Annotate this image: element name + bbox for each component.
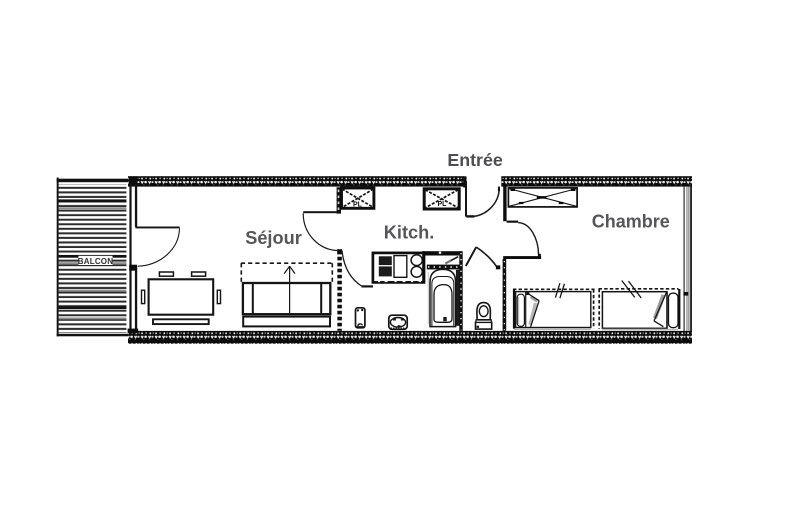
svg-text:Chambre: Chambre bbox=[592, 212, 670, 232]
svg-text:Séjour: Séjour bbox=[245, 228, 302, 248]
svg-text:PL: PL bbox=[353, 201, 363, 208]
svg-text:BALCON: BALCON bbox=[78, 257, 113, 266]
svg-text:Kitch.: Kitch. bbox=[384, 222, 435, 242]
svg-text:Entrée: Entrée bbox=[447, 150, 502, 170]
svg-text:PL: PL bbox=[438, 201, 448, 208]
